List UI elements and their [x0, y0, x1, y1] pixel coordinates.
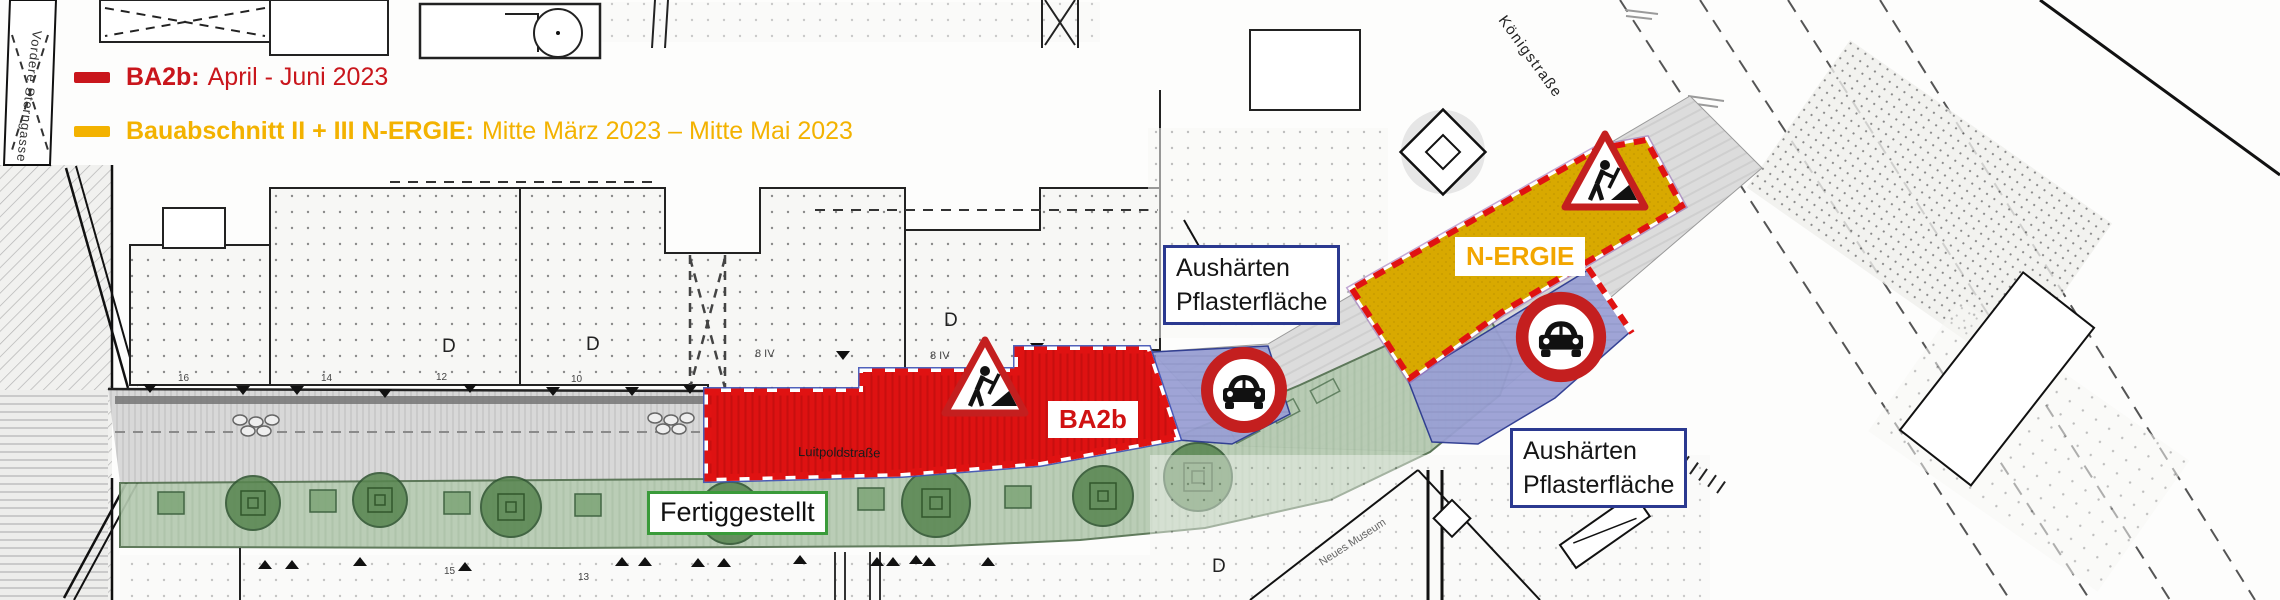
curing-2-line2: Pflasterfläche [1523, 468, 1674, 502]
zone-label-curing-2: Aushärten Pflasterfläche [1510, 428, 1687, 508]
block-label-d: D [586, 334, 600, 355]
legend-item-nergie: Bauabschnitt II + III N-ERGIE: Mitte Mär… [74, 114, 853, 148]
legend-label-bold: BA2b: [126, 63, 200, 92]
legend-label-bold: Bauabschnitt II + III N-ERGIE: [126, 117, 474, 146]
zone-label-nergie: N-ERGIE [1455, 237, 1585, 276]
site-plan-page: Vordere Sterngasse Königstraße Luitpolds… [0, 0, 2280, 600]
legend-color-dash-red [74, 72, 110, 83]
house-number: 13 [578, 572, 590, 583]
floors-label: 8 IV [930, 350, 950, 362]
zone-label-ba2b: BA2b [1048, 401, 1138, 438]
block-label-d: D [1212, 556, 1226, 577]
house-number: 10 [571, 374, 583, 385]
house-number: 14 [321, 373, 333, 384]
curing-2-line1: Aushärten [1523, 434, 1674, 468]
block-label-d: D [944, 310, 958, 331]
legend: BA2b: April - Juni 2023 Bauabschnitt II … [74, 60, 853, 168]
house-number: 16 [178, 373, 190, 384]
legend-label-rest: April - Juni 2023 [208, 63, 389, 92]
curing-1-line1: Aushärten [1176, 251, 1327, 285]
house-number: 12 [436, 372, 448, 383]
street-luitpoldstrasse-pavement [108, 388, 710, 483]
zone-label-fertiggestellt: Fertiggestellt [647, 491, 828, 535]
legend-item-ba2b: BA2b: April - Juni 2023 [74, 60, 853, 94]
block-label-d: D [442, 336, 456, 357]
floors-label: 8 IV [755, 348, 775, 360]
curing-1-line2: Pflasterfläche [1176, 285, 1327, 319]
no-cars-sign-icon-2 [1518, 294, 1604, 380]
street-label-luitpoldstrasse: Luitpoldstraße [798, 444, 881, 460]
legend-label-rest: Mitte März 2023 – Mitte Mai 2023 [482, 117, 853, 146]
legend-color-dash-yellow [74, 126, 110, 137]
zone-label-curing-1: Aushärten Pflasterfläche [1163, 245, 1340, 325]
house-number: 15 [444, 566, 456, 577]
no-cars-sign-icon [1203, 349, 1285, 431]
